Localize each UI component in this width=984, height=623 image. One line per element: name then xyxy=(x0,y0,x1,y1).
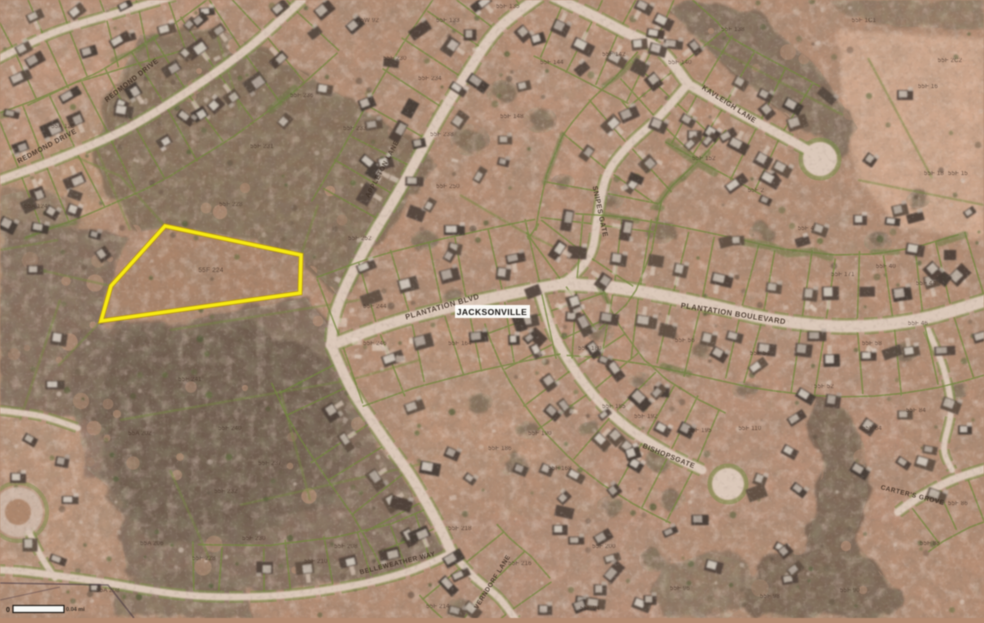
svg-text:55F 218: 55F 218 xyxy=(448,526,472,532)
svg-text:55F 233: 55F 233 xyxy=(343,126,367,132)
svg-text:55F 236: 55F 236 xyxy=(290,93,314,99)
svg-text:55F 164: 55F 164 xyxy=(448,341,472,347)
svg-text:55F 133: 55F 133 xyxy=(436,18,460,24)
svg-text:55F 56: 55F 56 xyxy=(675,338,695,344)
svg-text:55F 135: 55F 135 xyxy=(496,4,520,10)
svg-text:JACKSONVILLE: JACKSONVILLE xyxy=(457,307,527,317)
svg-text:55F 186: 55F 186 xyxy=(488,446,512,452)
svg-text:55F 171: 55F 171 xyxy=(831,272,855,278)
svg-text:55F 84: 55F 84 xyxy=(906,408,926,414)
svg-text:55A 124: 55A 124 xyxy=(24,204,48,210)
svg-text:55F 15: 55F 15 xyxy=(948,171,968,177)
svg-text:55F 88: 55F 88 xyxy=(920,541,940,547)
svg-text:55F 44: 55F 44 xyxy=(916,281,936,287)
svg-text:55F 2C2: 55F 2C2 xyxy=(938,58,963,64)
svg-text:55F 214: 55F 214 xyxy=(426,604,450,610)
svg-text:55F 46: 55F 46 xyxy=(908,321,928,327)
svg-text:55F 1C1: 55F 1C1 xyxy=(852,18,877,24)
svg-text:55F 168: 55F 168 xyxy=(548,466,572,472)
svg-text:55F 210: 55F 210 xyxy=(304,559,328,565)
svg-text:55F 138: 55F 138 xyxy=(721,27,745,33)
svg-text:55F 250: 55F 250 xyxy=(436,184,460,190)
svg-text:55F 64: 55F 64 xyxy=(862,426,882,432)
svg-text:55F 58: 55F 58 xyxy=(862,341,882,347)
svg-text:55A 126: 55A 126 xyxy=(51,124,75,130)
svg-text:55A 202: 55A 202 xyxy=(128,431,152,437)
svg-text:55F 237: 55F 237 xyxy=(258,461,282,467)
svg-text:55A 206: 55A 206 xyxy=(140,541,164,547)
svg-text:55F 185: 55F 185 xyxy=(602,404,626,410)
svg-text:55F 190: 55F 190 xyxy=(528,431,552,437)
svg-text:55F 216: 55F 216 xyxy=(508,561,532,567)
svg-text:55F 54: 55F 54 xyxy=(750,351,770,357)
svg-text:55F 16: 55F 16 xyxy=(918,84,938,90)
svg-text:55F 180: 55F 180 xyxy=(578,346,602,352)
svg-text:55F 224: 55F 224 xyxy=(198,267,223,274)
svg-text:55F 208: 55F 208 xyxy=(334,544,358,550)
svg-text:55F 96: 55F 96 xyxy=(670,586,690,592)
svg-text:55F 246: 55F 246 xyxy=(363,341,387,347)
svg-text:55F 142: 55F 142 xyxy=(602,52,626,58)
svg-text:55F 40: 55F 40 xyxy=(876,264,896,270)
svg-text:55F 18: 55F 18 xyxy=(924,171,944,177)
svg-text:55F 152: 55F 152 xyxy=(692,156,716,162)
svg-text:55F 200: 55F 200 xyxy=(592,544,616,550)
svg-text:55F 240: 55F 240 xyxy=(218,426,242,432)
svg-text:55F 230: 55F 230 xyxy=(242,536,266,542)
svg-text:55F 230: 55F 230 xyxy=(383,56,407,62)
svg-text:55F 252: 55F 252 xyxy=(348,236,372,242)
svg-text:55F 90: 55F 90 xyxy=(840,588,860,594)
svg-text:55F 98: 55F 98 xyxy=(760,594,780,600)
svg-text:55F 228: 55F 228 xyxy=(219,202,243,208)
svg-text:55F 86: 55F 86 xyxy=(948,501,968,507)
svg-text:55F 228: 55F 228 xyxy=(192,556,216,562)
svg-text:55F 192: 55F 192 xyxy=(634,414,658,420)
svg-text:55F 52: 55F 52 xyxy=(814,384,834,390)
svg-text:55A 208: 55A 208 xyxy=(96,588,120,594)
svg-text:55F 241: 55F 241 xyxy=(178,377,202,383)
svg-text:55W 92: 55W 92 xyxy=(357,18,379,24)
svg-text:55F 144: 55F 144 xyxy=(540,60,564,66)
svg-text:0.04 mi: 0.04 mi xyxy=(66,607,85,613)
svg-text:55F 110: 55F 110 xyxy=(739,426,762,432)
svg-text:55F 231: 55F 231 xyxy=(250,144,274,150)
svg-text:55F 2: 55F 2 xyxy=(748,188,765,194)
svg-text:55F 140: 55F 140 xyxy=(668,60,692,66)
svg-text:55F 94: 55F 94 xyxy=(580,606,600,612)
svg-text:55F 148: 55F 148 xyxy=(500,114,524,120)
svg-text:55F 232: 55F 232 xyxy=(214,489,238,495)
svg-text:0: 0 xyxy=(6,607,10,614)
svg-text:55F 4: 55F 4 xyxy=(798,226,815,232)
svg-text:55F 195: 55F 195 xyxy=(688,428,712,434)
svg-text:55F 244: 55F 244 xyxy=(363,304,387,310)
svg-text:55F 238: 55F 238 xyxy=(430,132,454,138)
svg-text:55F 234: 55F 234 xyxy=(418,76,442,82)
